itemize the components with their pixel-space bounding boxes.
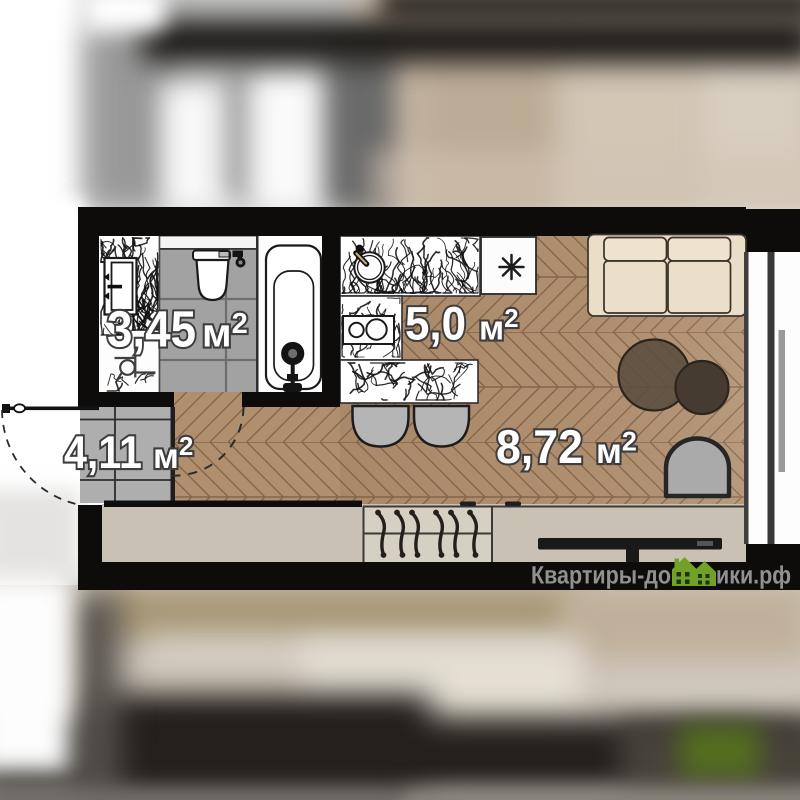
svg-text:ики.рф: ики.рф [716,562,791,590]
svg-text:Квартиры-до: Квартиры-до [531,562,671,590]
